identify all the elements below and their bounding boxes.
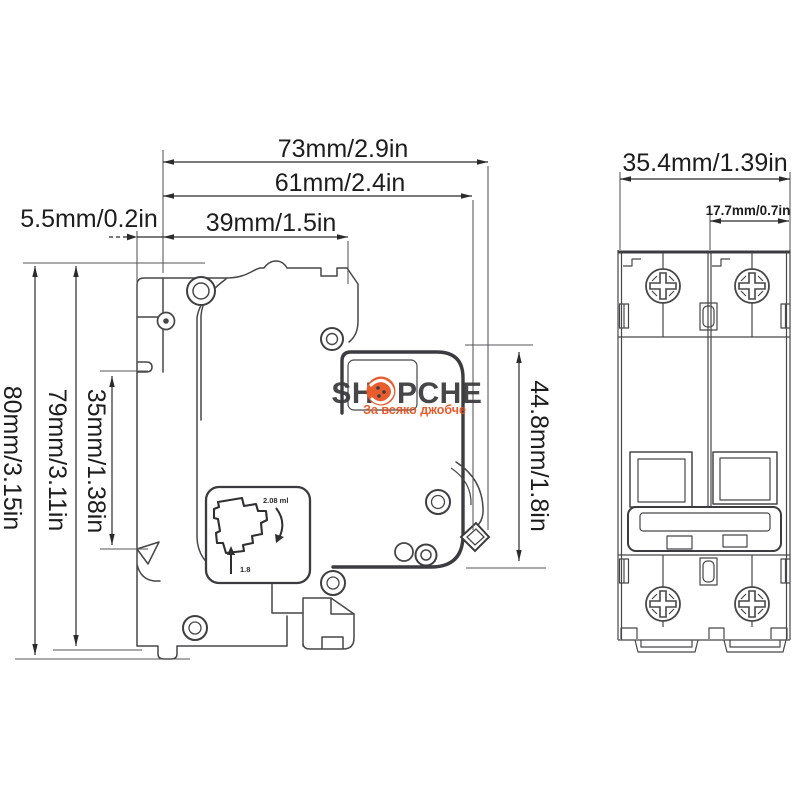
dim-label-height-total: 80mm/3.15in xyxy=(0,386,26,531)
case-screw-right xyxy=(426,490,450,514)
dim-width-total: 73mm/2.9in xyxy=(163,135,488,163)
dim-label-width-body: 61mm/2.4in xyxy=(275,169,406,197)
dim-height-body: 79mm/3.11in xyxy=(43,266,76,646)
paw-dot xyxy=(376,386,380,390)
rivet-a xyxy=(395,543,413,561)
case-screw-bottom xyxy=(183,616,207,640)
din-clip xyxy=(137,542,159,564)
watermark-tagline: За всяко джобче xyxy=(363,403,466,417)
label-box-top-text: 2.08 ml xyxy=(263,496,288,505)
toggle-arc-inner xyxy=(451,468,471,505)
dim-depth-upper: 44.8mm/1.8in xyxy=(519,352,553,561)
phillips-screw-bottom-left xyxy=(646,587,680,621)
dim-label-rail-offset: 5.5mm/0.2in xyxy=(20,205,158,233)
technical-drawing-canvas: 2.08 ml 1.8 73mm/2.9in 61mm xyxy=(0,0,800,800)
paw-dot xyxy=(382,390,386,394)
phillips-screw-bottom-right xyxy=(735,587,769,621)
dim-width-body: 61mm/2.4in xyxy=(163,169,472,197)
dim-width-front: 39mm/1.5in xyxy=(163,209,348,237)
handle-window-left xyxy=(630,452,692,507)
handle-window-right xyxy=(713,452,777,504)
handle-left xyxy=(638,459,685,502)
dim-label-width-front: 39mm/1.5in xyxy=(206,209,337,237)
dim-rail-offset: 5.5mm/0.2in xyxy=(20,205,163,240)
front-view-drawing xyxy=(618,250,790,652)
terminal-screw-top xyxy=(321,328,343,350)
phillips-screw-top-left xyxy=(646,269,680,303)
dim-label-width-total: 73mm/2.9in xyxy=(278,135,409,163)
dimension-annotations: 73mm/2.9in 61mm/2.4in 39mm/1.5in 5.5mm/0… xyxy=(0,135,790,659)
toggle-arc xyxy=(456,462,483,527)
mount-hole-outer xyxy=(187,277,215,305)
handle-right xyxy=(720,458,770,500)
dim-front-width-total: 35.4mm/1.39in xyxy=(620,149,790,179)
dim-label-depth-upper: 44.8mm/1.8in xyxy=(525,380,553,531)
dim-label-pole-width: 17.7mm/0.7in xyxy=(706,203,791,218)
phillips-screw-top-right xyxy=(735,269,769,303)
arrowhead-icon xyxy=(127,234,137,241)
dim-front-pole-width: 17.7mm/0.7in xyxy=(706,203,791,221)
mounting-label-box: 2.08 ml 1.8 xyxy=(206,487,310,583)
dim-label-front-width: 35.4mm/1.39in xyxy=(622,149,787,177)
dim-label-height-body: 79mm/3.11in xyxy=(43,389,71,532)
small-hole-dot xyxy=(163,318,169,324)
watermark-swirl-icon xyxy=(367,377,396,406)
dim-label-rail-height: 35mm/1.38in xyxy=(82,389,110,534)
dim-rail-height: 35mm/1.38in xyxy=(82,376,112,545)
label-box-bottom-text: 1.8 xyxy=(240,565,250,574)
case-screw-center xyxy=(321,571,345,595)
rivet-b xyxy=(416,545,437,566)
watermark: SH PCHE За всяко джобче xyxy=(331,377,482,418)
paw-dot xyxy=(377,394,381,398)
center-terminal-slot-bottom xyxy=(703,561,714,582)
side-view-drawing: 2.08 ml 1.8 xyxy=(137,261,489,659)
dim-height-total: 80mm/3.15in xyxy=(0,266,35,655)
